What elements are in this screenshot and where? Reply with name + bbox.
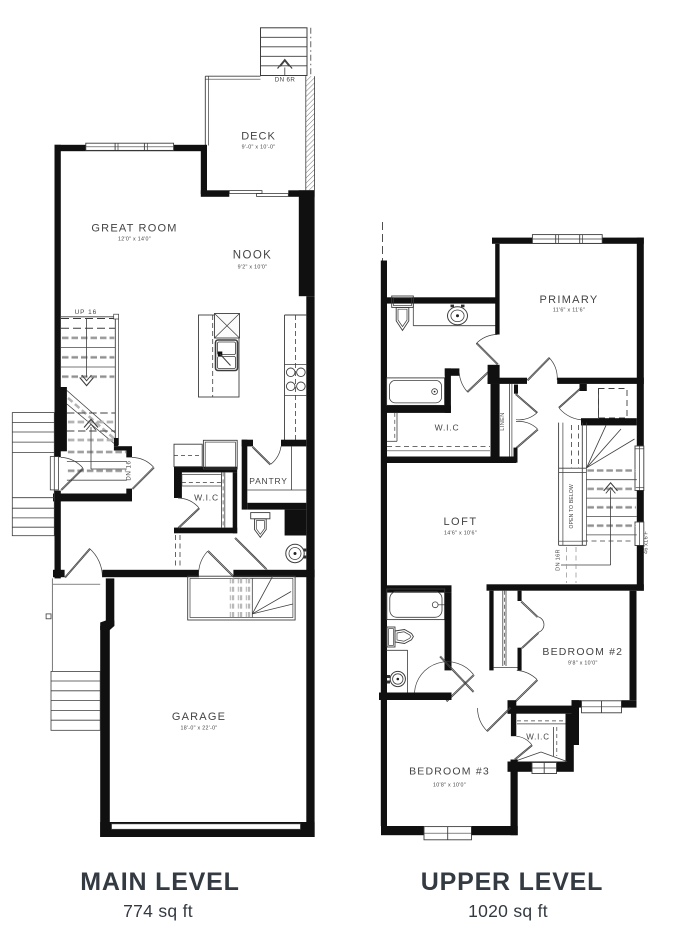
svg-text:W.I.C: W.I.C: [526, 733, 550, 742]
svg-text:W.I.C: W.I.C: [194, 493, 219, 503]
svg-text:LINEN: LINEN: [500, 412, 506, 430]
svg-text:1020 sq ft: 1020 sq ft: [468, 901, 548, 921]
svg-text:UP 16: UP 16: [75, 309, 98, 316]
svg-text:9'2" x 10'0": 9'2" x 10'0": [238, 265, 268, 271]
svg-text:DN 16R: DN 16R: [556, 549, 562, 571]
svg-text:BEDROOM #3: BEDROOM #3: [409, 766, 490, 778]
svg-text:10'8" x 10'0": 10'8" x 10'0": [433, 783, 466, 789]
svg-text:GARAGE: GARAGE: [172, 711, 226, 723]
svg-text:11'6" x 11'6": 11'6" x 11'6": [553, 308, 585, 314]
svg-text:GREAT ROOM: GREAT ROOM: [91, 223, 177, 235]
svg-text:14'6" x 10'6": 14'6" x 10'6": [444, 531, 477, 537]
svg-text:18'-0" x 22'-0": 18'-0" x 22'-0": [180, 726, 217, 732]
svg-text:LOFT: LOFT: [443, 516, 477, 528]
svg-text:12'0" x 14'0": 12'0" x 14'0": [118, 237, 151, 243]
svg-text:PANTRY: PANTRY: [249, 476, 288, 486]
svg-text:774 sq ft: 774 sq ft: [123, 901, 193, 921]
svg-text:W.I.C: W.I.C: [435, 423, 460, 433]
svg-text:MAIN LEVEL: MAIN LEVEL: [80, 868, 239, 896]
svg-text:DN 16: DN 16: [126, 461, 133, 481]
svg-text:BEDROOM #2: BEDROOM #2: [542, 646, 623, 658]
svg-text:UPPER LEVEL: UPPER LEVEL: [421, 868, 603, 896]
svg-text:9'8" x 10'0": 9'8" x 10'0": [568, 661, 598, 667]
svg-text:PRIMARY: PRIMARY: [539, 294, 598, 306]
svg-text:46'x16'F: 46'x16'F: [644, 531, 650, 554]
svg-text:DECK: DECK: [241, 131, 276, 143]
svg-text:DN 6R: DN 6R: [275, 77, 296, 84]
svg-text:OPEN TO BELOW: OPEN TO BELOW: [569, 484, 575, 528]
svg-text:NOOK: NOOK: [233, 250, 272, 262]
svg-text:9'-0" x 10'-0": 9'-0" x 10'-0": [242, 145, 276, 151]
